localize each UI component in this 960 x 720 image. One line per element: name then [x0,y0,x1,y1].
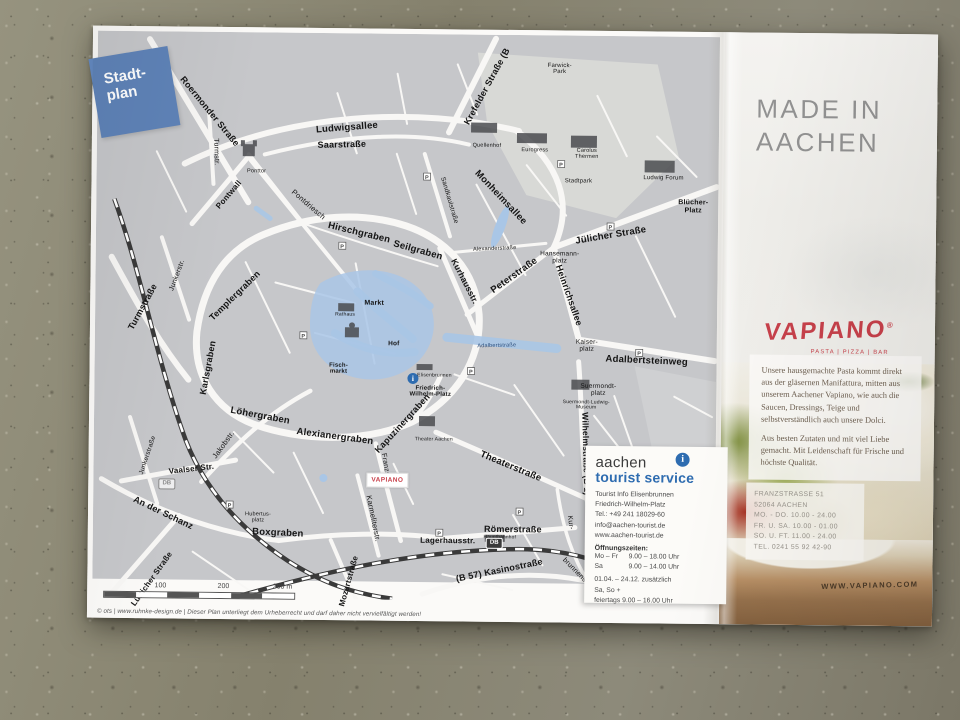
db-hauptbahnhof-icon: DB [486,538,503,549]
svg-text:P: P [437,531,441,537]
tourist-service-logo: aachen tourist service i [595,454,717,486]
opening-hours-row: Sa9.00 – 14.00 Uhr [594,562,716,573]
opening-hours-cell: Mo – Fr [595,552,629,563]
ad-headline-line1: MADE IN [756,93,882,127]
vapiano-map-marker-label: VAPIANO [371,477,403,484]
svg-text:P: P [228,503,232,509]
opening-hours-cell: Sa [594,562,628,573]
tourist-service-box: aachen tourist service i Tourist Info El… [584,446,728,604]
vapiano-logo: VAPIANO® [720,315,936,348]
vapiano-address-card: FRANZSTRASSE 5152064 AACHENMO. - DO. 10.… [746,482,865,560]
opening-hours-extra: 01.04. – 24.12. zusätzlichSa, So +feiert… [594,575,716,607]
vapiano-ad-panel: MADE IN AACHEN VAPIANO® PASTA | PIZZA | … [719,32,938,626]
ad-body-paragraph-1: Unsere hausgemachte Pasta kommt direkt a… [761,365,910,427]
tourist-contact-line: Tel.: +49 241 18029-60 [595,510,717,521]
map-scale-bar: 100 200 300 m [103,582,303,600]
tourist-contact-line: www.aachen-tourist.de [595,531,717,542]
tourist-contact-lines: Tourist Info ElisenbrunnenFriedrich-Wilh… [595,490,718,542]
svg-text:P: P [469,370,473,376]
db-station-icon: DB [158,478,175,489]
scale-bar-segments [103,591,295,600]
opening-hours-cell: 9.00 – 14.00 Uhr [628,562,679,573]
address-line: SO. U. FT. 11.00 - 24.00 [754,532,856,544]
svg-text:P: P [425,175,429,181]
tourist-logo-service: tourist service [595,469,717,486]
info-i-icon: i [676,453,690,467]
ad-body-card: Unsere hausgemachte Pasta kommt direkt a… [748,354,921,480]
ad-headline: MADE IN AACHEN [756,93,883,159]
svg-text:P: P [518,510,522,516]
scale-300: 300 m [229,583,292,591]
opening-hours-cell: 9.00 – 18.00 Uhr [629,552,680,563]
address-line: MO. - DO. 10.00 - 24.00 [754,511,856,523]
svg-text:P: P [559,162,563,168]
address-line: FRANZSTRASSE 51 [754,490,856,502]
scale-200: 200 [166,582,229,590]
vapiano-logo-text: VAPIANO [763,316,887,346]
opening-hours: Mo – Fr9.00 – 18.00 UhrSa9.00 – 14.00 Uh… [594,552,716,574]
map-sheet: PP PP PP PP PP Roermonder StraßeLudwigsa… [87,26,938,627]
svg-text:P: P [301,334,305,340]
concrete-background: PP PP PP PP PP Roermonder StraßeLudwigsa… [0,0,960,720]
opening-hours-extra-line: 01.04. – 24.12. zusätzlich [594,575,716,586]
address-line: TEL. 0241 55 92 42-90 [754,542,856,554]
opening-hours-extra-line: feiertags 9.00 – 16.00 Uhr [594,596,716,607]
registered-mark: ® [886,321,893,330]
ad-headline-line2: AACHEN [756,125,882,159]
map-copyright: © ots | www.ruhnke-design.de | Dieser Pl… [97,608,421,618]
svg-text:P: P [609,225,613,231]
vapiano-map-marker: VAPIANO [366,472,408,487]
tourist-info-icon: i [407,373,418,384]
stadtplan-tag: Stadt- plan [88,46,180,138]
ad-body-paragraph-2: Aus besten Zutaten und mit viel Liebe ge… [761,433,909,471]
svg-text:P: P [340,244,344,250]
svg-text:P: P [637,351,641,357]
scale-100: 100 [103,582,166,590]
